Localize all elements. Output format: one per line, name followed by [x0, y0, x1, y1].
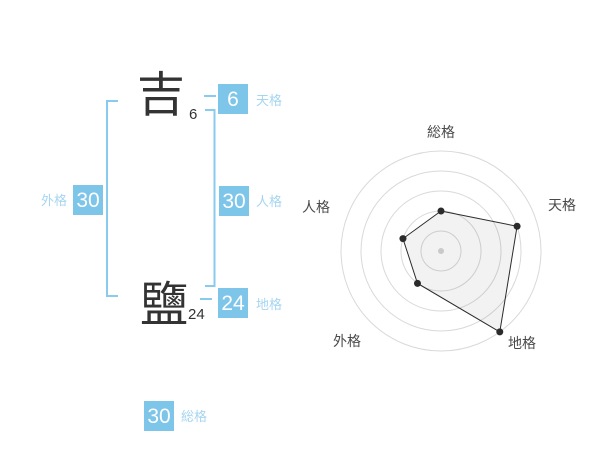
- jinkaku-value-box: 30: [219, 186, 249, 216]
- jinkaku-value: 30: [222, 191, 245, 212]
- radar-point: [496, 328, 503, 335]
- jinkaku-label: 人格: [256, 195, 282, 208]
- outer-bracket: [107, 101, 118, 296]
- chikaku-value-box: 24: [218, 288, 248, 318]
- radar-center-dot: [438, 248, 444, 254]
- radar-chart: 総格天格地格外格人格: [291, 106, 591, 366]
- gaikaku-value: 30: [76, 190, 99, 211]
- name-fortune-panel: 吉 6 鹽 24 6 天格 30 人格 24 地格 外格 30 30 総格 総格…: [0, 0, 600, 470]
- radar-point: [514, 223, 521, 230]
- radar-axis-label: 総格: [427, 124, 455, 140]
- gaikaku-label: 外格: [41, 194, 67, 207]
- soukaku-value: 30: [147, 406, 170, 427]
- chikaku-label: 地格: [256, 298, 282, 311]
- radar-axis-label: 人格: [302, 199, 330, 215]
- radar-polygon: [403, 211, 517, 332]
- tenkaku-value: 6: [227, 89, 239, 110]
- chikaku-value: 24: [221, 293, 244, 314]
- radar-axis-label: 天格: [548, 197, 576, 213]
- tenkaku-value-box: 6: [218, 84, 248, 114]
- inner-bracket: [205, 110, 215, 286]
- radar-point: [438, 208, 445, 215]
- gaikaku-value-box: 30: [73, 185, 103, 215]
- soukaku-label: 総格: [181, 410, 207, 423]
- radar-point: [399, 235, 406, 242]
- tenkaku-label: 天格: [256, 94, 282, 107]
- soukaku-value-box: 30: [144, 401, 174, 431]
- radar-axis-label: 地格: [508, 335, 536, 351]
- radar-point: [414, 280, 421, 287]
- radar-axis-label: 外格: [333, 333, 361, 349]
